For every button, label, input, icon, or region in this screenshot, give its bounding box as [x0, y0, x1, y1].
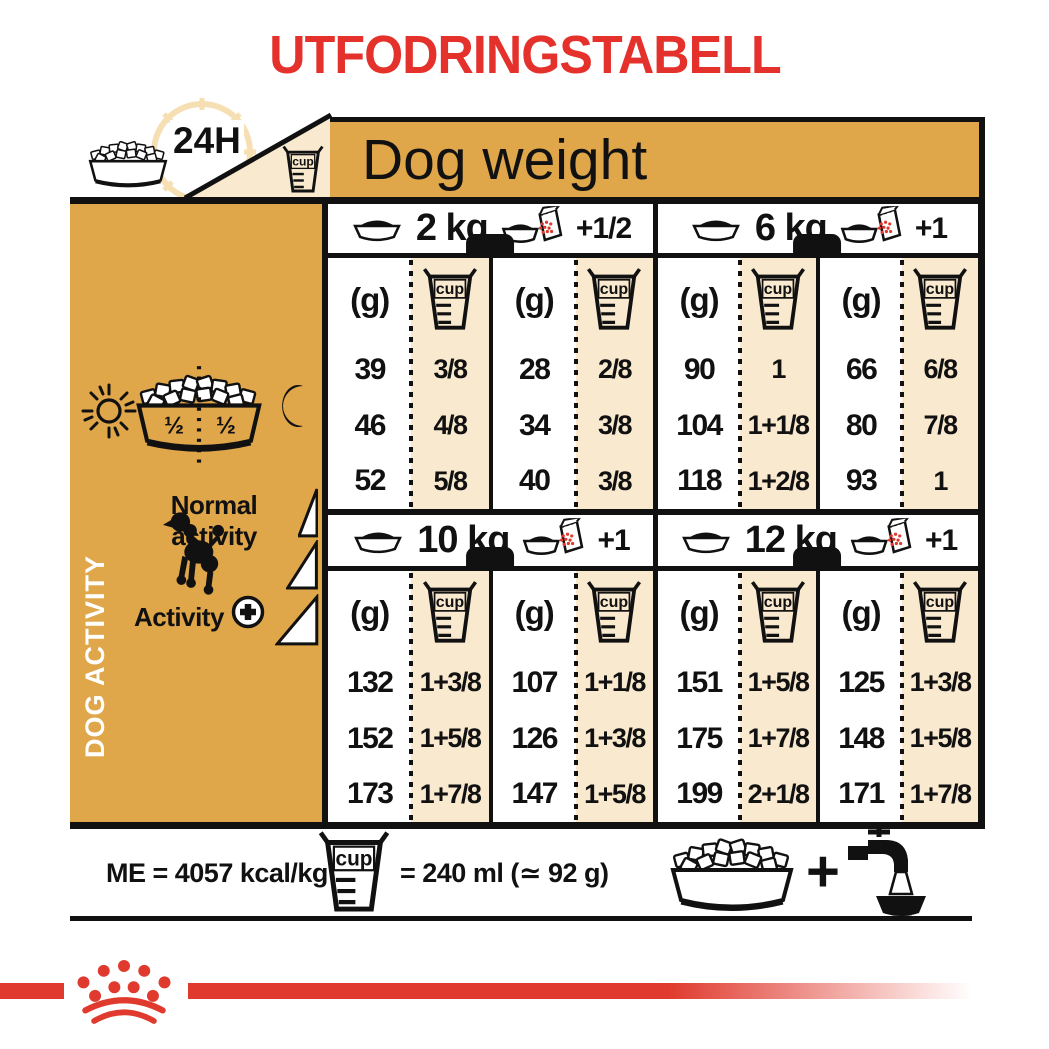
plus-sign: + [806, 838, 840, 905]
dog-weight-label: Dog weight [362, 127, 647, 193]
cup-value: 2/8 [598, 342, 631, 398]
gram-value: 171 [838, 766, 884, 822]
moon-icon [276, 384, 310, 428]
gram-header: (g) [680, 281, 719, 319]
ration-column: (g) 39 46 52 3/8 4/8 5/8 [328, 258, 489, 509]
weight-band: 10 kg +1 [328, 515, 653, 571]
cup-icon [750, 267, 806, 333]
ration-column: (g) 90 104 118 1 1+1/8 1+2/8 [658, 258, 816, 509]
ration-data: (g) 90 104 118 1 1+1/8 1+2/8 [658, 258, 978, 509]
ration-column: (g) 107 126 147 1+1/8 1+3/8 1+5/8 [489, 571, 654, 822]
gram-value: 80 [846, 398, 876, 454]
gram-value: 132 [347, 655, 393, 711]
gram-value: 118 [677, 453, 721, 509]
gram-header: (g) [515, 281, 554, 319]
weight-label: 2 kg [416, 207, 488, 250]
ration-column: (g) 28 34 40 2/8 3/8 3/8 [489, 258, 654, 509]
cup-icon [586, 580, 642, 646]
gram-value: 28 [519, 342, 549, 398]
feeding-table-page: UTFODRINGSTABELL 24H Dog weight [0, 0, 1049, 1049]
cup-value: 1+3/8 [420, 655, 481, 711]
gram-value: 125 [838, 655, 884, 711]
gram-value: 46 [355, 398, 385, 454]
cup-value: 1+5/8 [748, 655, 809, 711]
weight-label: 12 kg [745, 519, 837, 562]
gram-value: 175 [676, 711, 722, 767]
weight-section-2kg: 2 kg +1/2 (g) 39 46 52 [328, 204, 653, 509]
gram-header: (g) [842, 594, 881, 632]
bowl-icon [689, 214, 743, 243]
cup-value: 1+7/8 [420, 766, 481, 822]
cup-value: 6/8 [924, 342, 957, 398]
cup-value: 1+1/8 [748, 398, 809, 454]
cup-value: 1+2/8 [748, 453, 809, 509]
activity-level-2-wedge [286, 540, 318, 590]
cup-icon [586, 267, 642, 333]
gram-value: 107 [511, 655, 557, 711]
cup-value: 1+3/8 [910, 655, 971, 711]
cup-value: 5/8 [433, 453, 466, 509]
cup-value: 1+3/8 [584, 711, 645, 767]
weight-label: 6 kg [755, 207, 827, 250]
gram-header: (g) [680, 594, 719, 632]
cup-icon [282, 144, 324, 196]
gram-value: 147 [511, 766, 557, 822]
weight-band: 12 kg +1 [658, 515, 978, 571]
ration-data: (g) 39 46 52 3/8 4/8 5/8 [328, 258, 653, 509]
weight-band: 6 kg +1 [658, 204, 978, 258]
weight-sections: 2 kg +1/2 (g) 39 46 52 [328, 204, 978, 822]
half-left-label: ½ [164, 413, 184, 440]
activity-plus-icon [230, 594, 266, 630]
metabolizable-energy-label: ME = 4057 kcal/kg [106, 858, 328, 889]
gram-value: 199 [676, 766, 722, 822]
dog-activity-label: DOG ACTIVITY [80, 480, 111, 832]
poodle-icon [162, 510, 224, 596]
gram-value: 152 [347, 711, 393, 767]
cup-value: 1+5/8 [584, 766, 645, 822]
half-right-label: ½ [216, 413, 236, 440]
bowl-pouch-icon [849, 518, 915, 564]
gram-value: 34 [519, 398, 549, 454]
cup-value: 1+7/8 [748, 711, 809, 767]
extra-ration-label: +1/2 [576, 212, 631, 246]
gram-value: 126 [511, 711, 557, 767]
cup-icon [750, 580, 806, 646]
feeding-table: ½ ½ DOG ACTIVITY Normal activity Activit… [70, 197, 985, 829]
cup-value: 1+7/8 [910, 766, 971, 822]
weight-band: 2 kg +1/2 [328, 204, 653, 258]
bowl-icon [350, 214, 404, 243]
brand-stripe-left [0, 983, 64, 999]
cup-value: 3/8 [433, 342, 466, 398]
gram-header: (g) [842, 281, 881, 319]
gram-value: 173 [347, 766, 393, 822]
cup-value: 7/8 [924, 398, 957, 454]
footer-divider [70, 916, 972, 921]
cup-value: 4/8 [433, 398, 466, 454]
cup-value: 1 [771, 342, 785, 398]
dog-activity-sidebar: ½ ½ DOG ACTIVITY Normal activity Activit… [70, 204, 328, 822]
ration-column: (g) 132 152 173 1+3/8 1+5/8 1+7/8 [328, 571, 489, 822]
weight-label: 10 kg [417, 519, 509, 562]
gram-value: 148 [838, 711, 884, 767]
ration-column: (g) 151 175 199 1+5/8 1+7/8 2+1/8 [658, 571, 816, 822]
gram-value: 93 [846, 453, 876, 509]
cup-icon [422, 267, 478, 333]
cup-icon [315, 830, 393, 916]
kibble-bowl-icon [656, 834, 808, 918]
bowl-pouch-icon [521, 518, 587, 564]
cup-value: 1+5/8 [910, 711, 971, 767]
ration-data: (g) 151 175 199 1+5/8 1+7/8 2+1/8 [658, 571, 978, 822]
activity-label: Activity [134, 602, 224, 633]
weight-section-10kg: 10 kg +1 (g) 132 152 173 [328, 509, 653, 822]
ration-column: (g) 125 148 171 1+3/8 1+5/8 1+7/8 [816, 571, 978, 822]
bowl-pouch-icon [839, 206, 905, 252]
bowl-icon [679, 526, 733, 555]
activity-level-3-wedge [275, 594, 319, 646]
half-half-bowl-icon: ½ ½ [126, 364, 272, 474]
kibble-bowl-icon [80, 136, 176, 194]
cup-icon [912, 267, 968, 333]
ration-column: (g) 66 80 93 6/8 7/8 1 [816, 258, 978, 509]
dog-weight-header: Dog weight [330, 117, 985, 197]
cup-icon [912, 580, 968, 646]
gram-value: 151 [676, 655, 722, 711]
extra-ration-label: +1 [925, 524, 957, 558]
gram-value: 104 [676, 398, 722, 454]
cup-value: 1 [933, 453, 947, 509]
royal-canin-crown-logo [70, 956, 178, 1030]
cup-value: 3/8 [598, 453, 631, 509]
weight-section-12kg: 12 kg +1 (g) 151 175 199 [653, 509, 978, 822]
gram-value: 40 [519, 453, 549, 509]
extra-ration-label: +1 [915, 212, 947, 246]
water-tap-icon [846, 826, 930, 918]
gram-header: (g) [350, 281, 389, 319]
bowl-icon [351, 526, 405, 555]
gram-value: 66 [846, 342, 876, 398]
extra-ration-label: +1 [597, 524, 629, 558]
gram-value: 52 [355, 453, 385, 509]
cup-value: 1+1/8 [584, 655, 645, 711]
cup-value: 2+1/8 [748, 766, 809, 822]
ration-data: (g) 132 152 173 1+3/8 1+5/8 1+7/8 [328, 571, 653, 822]
gram-value: 39 [355, 342, 385, 398]
gram-header: (g) [350, 594, 389, 632]
cup-value: 1+5/8 [420, 711, 481, 767]
weight-section-6kg: 6 kg +1 (g) 90 104 118 [653, 204, 978, 509]
gram-value: 90 [684, 342, 714, 398]
page-title: UTFODRINGSTABELL [0, 24, 1049, 86]
brand-stripe-right [188, 983, 988, 999]
cup-equivalence-label: = 240 ml (≃ 92 g) [400, 858, 608, 889]
activity-level-1-wedge [298, 486, 318, 538]
gram-header: (g) [515, 594, 554, 632]
cup-icon [422, 580, 478, 646]
cup-value: 3/8 [598, 398, 631, 454]
